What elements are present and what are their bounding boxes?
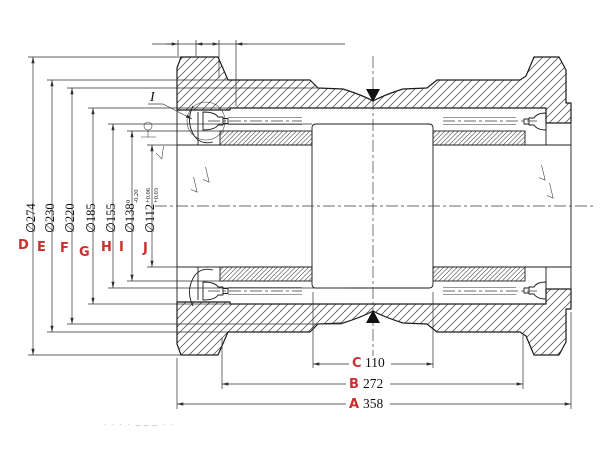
seal-cavity-arc-bottom <box>189 269 213 306</box>
dim-J-tol-lower: +0.03 <box>153 188 160 203</box>
bushing-left-bottom <box>220 267 312 281</box>
dim-B-letter: B <box>349 377 359 392</box>
dim-B-value: 272 <box>363 376 383 391</box>
diameter-dimension-letters: D E F G H I J <box>18 238 148 260</box>
dim-J-value: ∅112 <box>143 204 157 233</box>
dim-G-letter: G <box>79 245 90 260</box>
dim-I-tol-lower: -0.20 <box>133 189 140 203</box>
dim-I-letter: I <box>119 240 124 255</box>
bushing-right-bottom <box>433 267 525 281</box>
surface-finish-icon <box>155 146 167 160</box>
dim-I-tol-upper: 0 <box>125 200 132 203</box>
datum-target-icon <box>144 122 152 130</box>
diameter-dimension-values: ∅274 ∅230 ∅220 ∅185 ∅155 ∅138 0 -0.20 ∅1… <box>24 187 160 233</box>
dim-G-value: ∅185 <box>84 203 98 233</box>
dim-C-letter: C <box>352 356 362 371</box>
seal-top-right <box>524 113 546 130</box>
bushing-left-top <box>220 131 312 145</box>
track-roller-engineering-drawing: ∅274 ∅230 ∅220 ∅185 ∅155 ∅138 0 -0.20 ∅1… <box>0 0 600 450</box>
dim-E-letter: E <box>37 240 46 255</box>
dim-I-value: ∅138 <box>123 203 137 233</box>
dim-C-value: 110 <box>365 355 385 370</box>
dim-H-letter: H <box>101 240 112 255</box>
dim-J-tol-upper: +0.06 <box>145 187 152 203</box>
dim-A-letter: A <box>349 397 359 412</box>
dim-D-letter: D <box>18 238 29 253</box>
surface-finish-icon <box>198 167 215 184</box>
dim-D-value: ∅274 <box>24 203 38 233</box>
surface-finish-icon <box>186 177 203 194</box>
surface-finish-icon <box>534 165 551 182</box>
dim-F-value: ∅220 <box>63 203 77 233</box>
dim-A-value: 358 <box>363 396 384 411</box>
dim-H-value: ∅155 <box>104 203 118 233</box>
dim-E-value: ∅230 <box>43 203 57 233</box>
dim-F-letter: F <box>60 241 69 256</box>
drawing-canvas: ∅274 ∅230 ∅220 ∅185 ∅155 ∅138 0 -0.20 ∅1… <box>0 0 600 450</box>
dim-J-letter: J <box>142 241 148 256</box>
detail-label: I <box>149 90 156 105</box>
bushing-right-top <box>433 131 525 145</box>
surface-finish-icon <box>542 183 559 200</box>
seal-bottom-right <box>524 282 546 299</box>
seal-cavity-arc-top <box>189 106 213 143</box>
illegible-fine-print: · · · · ——— · · <box>104 422 175 429</box>
